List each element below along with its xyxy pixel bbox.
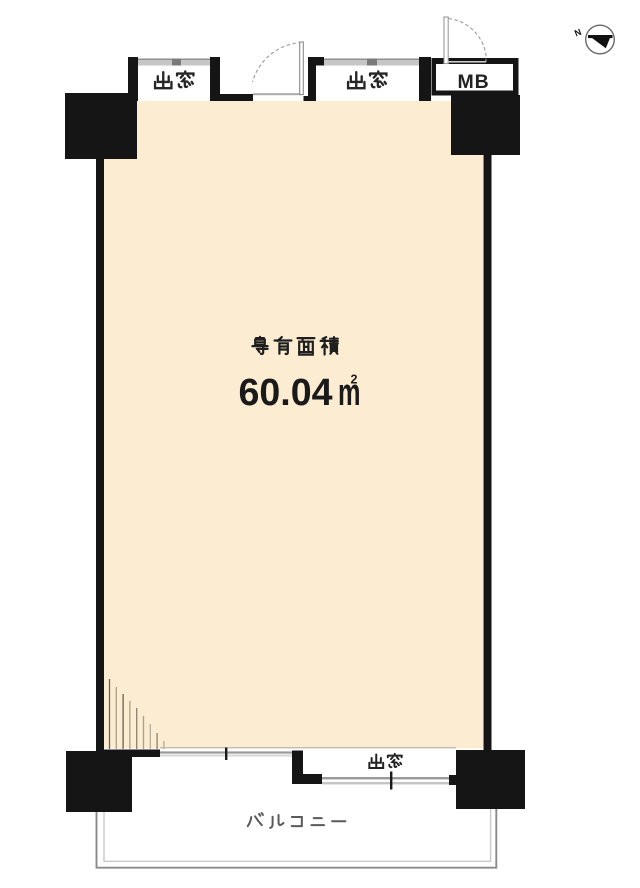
- svg-text:N: N: [573, 27, 583, 39]
- svg-text:60.04: 60.04: [239, 371, 333, 413]
- svg-text:2: 2: [351, 373, 358, 387]
- svg-text:MB: MB: [458, 71, 490, 93]
